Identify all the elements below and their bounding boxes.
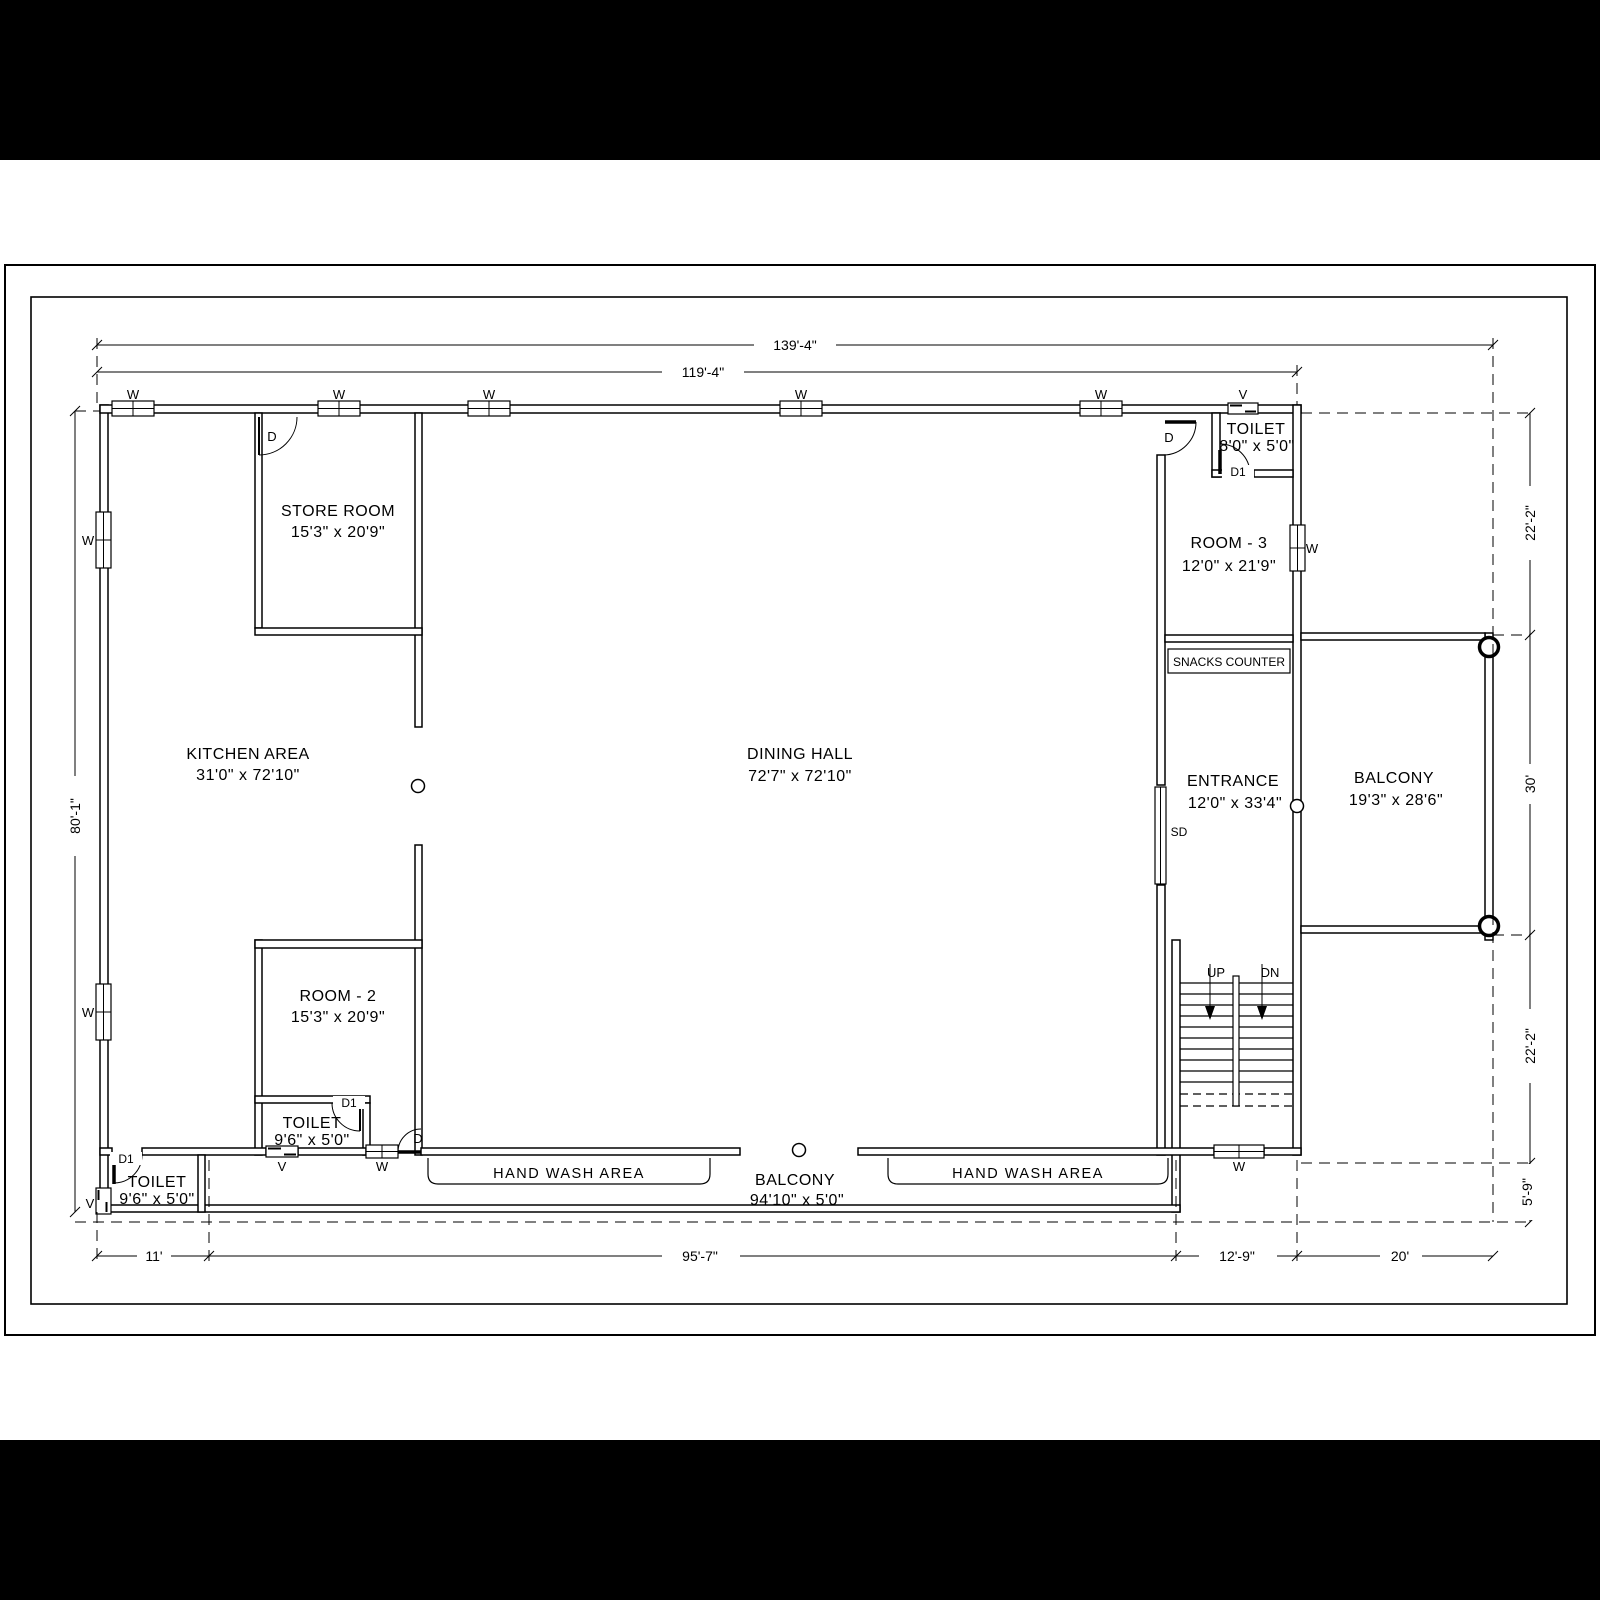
door-label: D: [1164, 430, 1173, 445]
dim-bottom-3: 12'-9": [1219, 1248, 1255, 1264]
column-marker: [412, 780, 425, 793]
stair-rail: [1233, 976, 1239, 1106]
svg-text:STORE ROOM: STORE ROOM: [281, 503, 395, 520]
svg-text:94'10" x 5'0": 94'10" x 5'0": [750, 1192, 844, 1209]
window-icon: [318, 401, 360, 416]
hand-wash-label: HAND WASH AREA: [493, 1166, 645, 1182]
svg-text:19'3" x 28'6": 19'3" x 28'6": [1349, 792, 1443, 809]
ventilator-icon: [96, 1188, 111, 1214]
column-pillar: [1480, 917, 1499, 936]
floor-plan-canvas: UP DN SNACKS COUNTER HAND WASH AREA HAND…: [0, 0, 1600, 1600]
window-icon: [96, 984, 111, 1040]
window-label: W: [795, 387, 808, 402]
svg-text:12'0" x 21'9": 12'0" x 21'9": [1182, 558, 1276, 575]
stairs-up-label: UP: [1207, 965, 1225, 980]
window-label: W: [483, 387, 496, 402]
dim-building-width: 119'-4": [682, 364, 724, 380]
window-icon: [112, 401, 154, 416]
svg-text:TOILET: TOILET: [283, 1115, 342, 1132]
window-label: W: [376, 1159, 389, 1174]
ventilator-label: V: [278, 1159, 287, 1174]
ventilator-icon: [1228, 403, 1258, 414]
hand-wash-label: HAND WASH AREA: [952, 1166, 1104, 1182]
window-icon: [1290, 525, 1305, 571]
room-label-toilet-bottom-left: TOILET 9'6" x 5'0": [119, 1174, 194, 1208]
dim-bottom-2: 95'-7": [682, 1248, 718, 1264]
room-label-toilet3: TOILET 8'0" x 5'0": [1219, 421, 1294, 455]
svg-text:9'6" x 5'0": 9'6" x 5'0": [274, 1132, 349, 1149]
window-label: W: [82, 1005, 95, 1020]
svg-text:72'7" x 72'10": 72'7" x 72'10": [748, 768, 852, 785]
svg-text:BALCONY: BALCONY: [755, 1172, 835, 1189]
ventilator-label: V: [1239, 387, 1248, 402]
dim-bottom-1: 11': [145, 1248, 162, 1264]
svg-text:31'0" x 72'10": 31'0" x 72'10": [196, 767, 300, 784]
window-label: W: [1095, 387, 1108, 402]
window-label: W: [1306, 541, 1319, 556]
window-icon: [96, 512, 111, 568]
svg-text:TOILET: TOILET: [128, 1174, 187, 1191]
door-label: D1: [341, 1096, 357, 1110]
window-icon: [1214, 1145, 1264, 1158]
sliding-door-label: SD: [1171, 825, 1188, 839]
window-label: W: [127, 387, 140, 402]
svg-text:15'3" x 20'9": 15'3" x 20'9": [291, 1009, 385, 1026]
ventilator-label: V: [86, 1196, 95, 1211]
svg-text:ENTRANCE: ENTRANCE: [1187, 773, 1279, 790]
svg-text:ROOM - 2: ROOM - 2: [300, 988, 377, 1005]
window-icon: [366, 1145, 398, 1158]
dim-total-height: 80'-1": [67, 798, 83, 834]
dim-right-1: 22'-2": [1522, 505, 1538, 541]
dim-total-width: 139'-4": [773, 337, 816, 353]
window-label: W: [333, 387, 346, 402]
dim-right-3: 22'-2": [1522, 1028, 1538, 1064]
window-label: W: [82, 533, 95, 548]
room-label-toilet-room2: TOILET 9'6" x 5'0": [274, 1115, 349, 1149]
door-label: D: [267, 429, 276, 444]
svg-text:12'0" x 33'4": 12'0" x 33'4": [1188, 795, 1282, 812]
door-label: D1: [118, 1152, 134, 1166]
dim-right-2: 30': [1522, 775, 1538, 793]
window-icon: [468, 401, 510, 416]
window-label: W: [1233, 1159, 1246, 1174]
stairs-down-label: DN: [1261, 965, 1280, 980]
window-icon: [780, 401, 822, 416]
snacks-counter-label: SNACKS COUNTER: [1173, 655, 1285, 669]
door-label: D: [413, 1131, 422, 1146]
svg-text:15'3" x 20'9": 15'3" x 20'9": [291, 524, 385, 541]
svg-text:8'0" x 5'0": 8'0" x 5'0": [1219, 438, 1294, 455]
svg-text:9'6" x 5'0": 9'6" x 5'0": [119, 1191, 194, 1208]
door-label: D1: [1230, 465, 1246, 479]
column-marker: [1291, 800, 1304, 813]
dim-bottom-4: 20': [1391, 1248, 1409, 1264]
window-icon: [1080, 401, 1122, 416]
svg-text:KITCHEN AREA: KITCHEN AREA: [186, 746, 309, 763]
sliding-door-icon: [1155, 787, 1166, 884]
svg-text:TOILET: TOILET: [1227, 421, 1286, 438]
svg-text:DINING HALL: DINING HALL: [747, 746, 853, 763]
column-pillar: [1480, 638, 1499, 657]
dim-right-4: 5'-9": [1519, 1178, 1535, 1206]
column-marker: [793, 1144, 806, 1157]
svg-text:ROOM - 3: ROOM - 3: [1191, 535, 1268, 552]
svg-text:BALCONY: BALCONY: [1354, 770, 1434, 787]
